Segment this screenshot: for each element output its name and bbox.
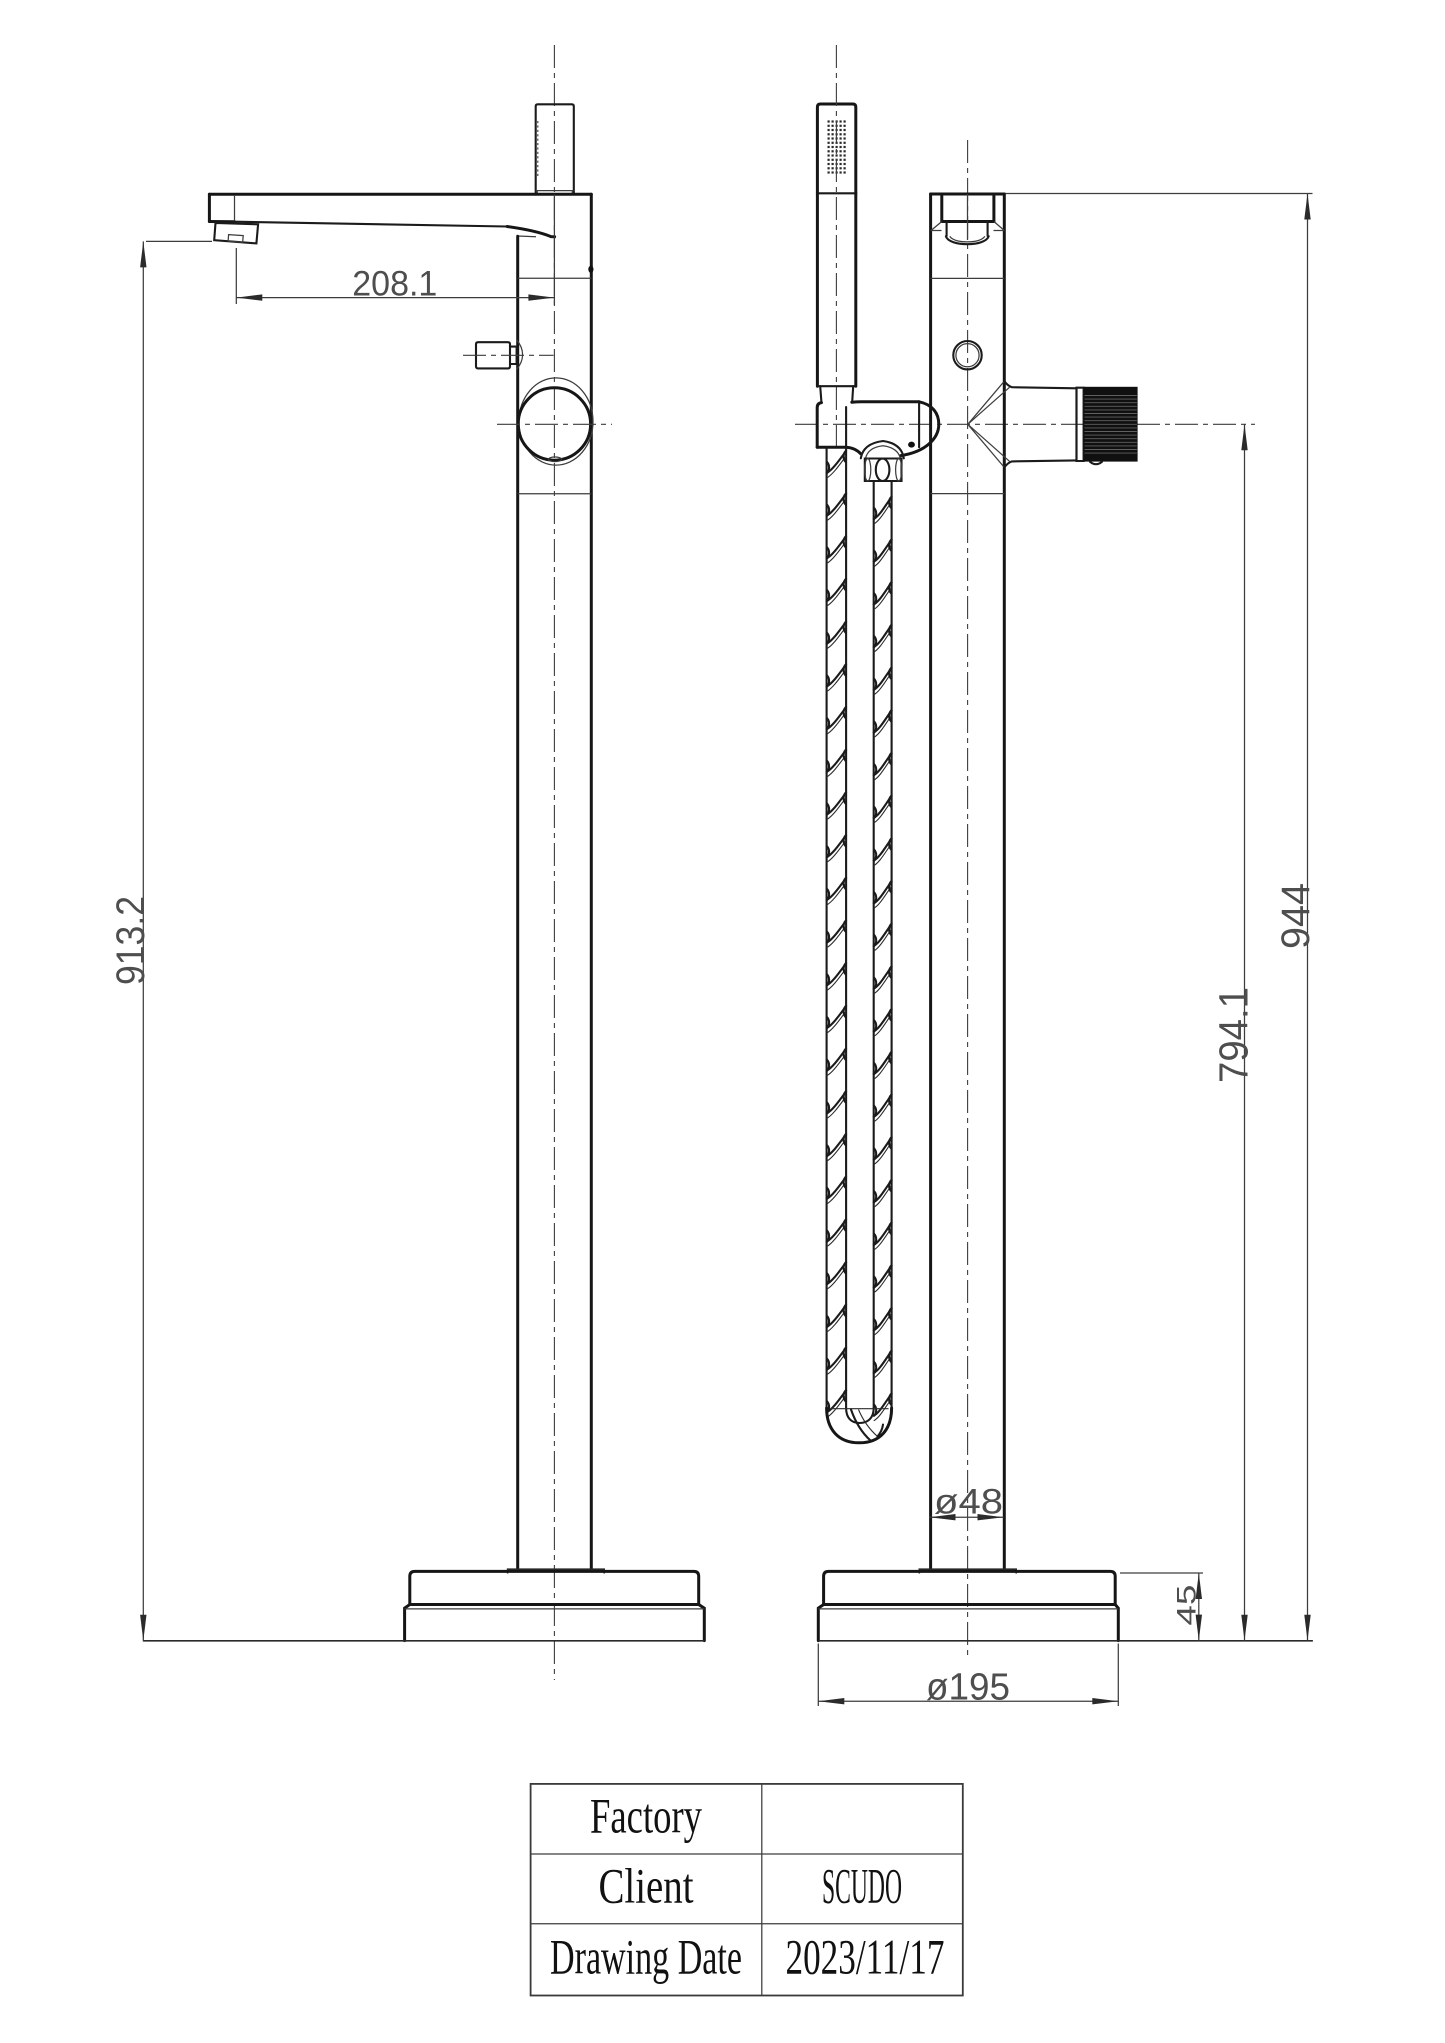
svg-text:208.1: 208.1 xyxy=(352,265,437,304)
svg-text:45: 45 xyxy=(1172,1585,1202,1626)
svg-text:913.2: 913.2 xyxy=(109,896,153,985)
svg-text:794.1: 794.1 xyxy=(1211,987,1257,1083)
svg-text:ø195: ø195 xyxy=(926,1666,1010,1708)
svg-text:944: 944 xyxy=(1274,883,1318,949)
svg-text:2023/11/17: 2023/11/17 xyxy=(786,1929,945,1985)
svg-text:Drawing Date: Drawing Date xyxy=(550,1929,742,1985)
svg-text:ø48: ø48 xyxy=(934,1483,1003,1522)
svg-text:Client: Client xyxy=(599,1858,694,1914)
svg-text:SCUDO: SCUDO xyxy=(822,1858,902,1914)
svg-text:Factory: Factory xyxy=(590,1788,702,1844)
